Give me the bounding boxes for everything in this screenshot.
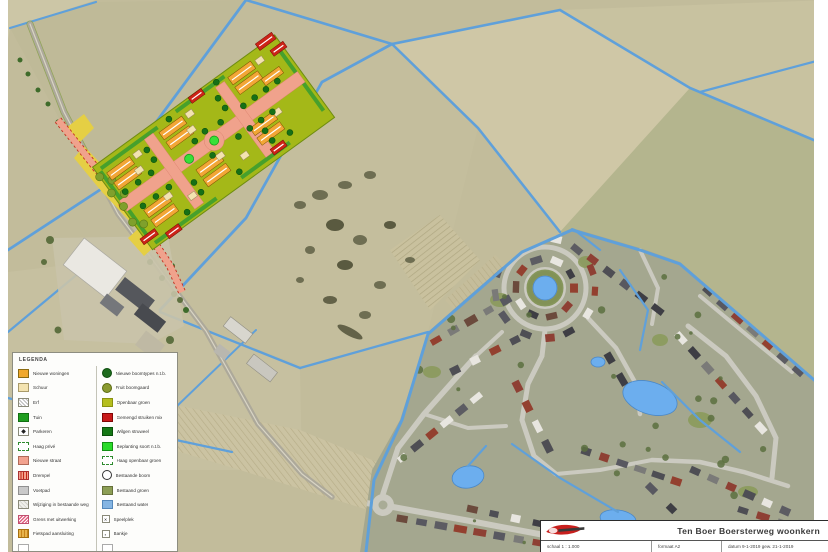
legend-label: Schuur bbox=[33, 385, 48, 390]
legend-row: Fietspad aansluiting bbox=[18, 527, 96, 542]
legend-row: Bestaand groen bbox=[102, 483, 174, 498]
legend-swatch-new-trees-icon bbox=[102, 368, 112, 378]
legend-row bbox=[18, 541, 96, 552]
legend-row: Parkeren bbox=[18, 424, 96, 439]
legend-swatch-bike-path-icon bbox=[18, 529, 29, 538]
legend-label: Bestaande boom bbox=[116, 473, 151, 478]
legend-label: Bestaand water bbox=[117, 502, 149, 507]
date-label: datum 9-1-2019 gew. 21-1-2019 bbox=[721, 541, 828, 552]
legend-row: Fruit boomgaard bbox=[102, 381, 174, 396]
legend-label: Haag privé bbox=[33, 444, 55, 449]
legend-row: Bestaand water bbox=[102, 497, 174, 512]
legend-swatch-empty-icon bbox=[102, 544, 113, 552]
legend-swatch-existing-water-icon bbox=[102, 500, 113, 509]
legend-column-right: Nieuwe boomtypes n.t.b.Fruit boomgaardOp… bbox=[96, 366, 174, 552]
legend-swatch-hedge-public-icon bbox=[102, 456, 113, 465]
legend-swatch-playground-icon bbox=[102, 515, 110, 523]
legend-label: Grens met uitwerking bbox=[33, 517, 76, 522]
legend-title: LEGENDA bbox=[19, 357, 173, 363]
legend-swatch-orchard-icon bbox=[102, 383, 112, 393]
legend-swatch-new-street-icon bbox=[18, 456, 29, 465]
legend-label: Openbaar groen bbox=[117, 400, 150, 405]
legend-label: Fruit boomgaard bbox=[116, 385, 150, 390]
legend-row: Haag openbaar groen bbox=[102, 454, 174, 469]
scanned-plan-sheet: LEGENDA Nieuwe woningenSchuurErfTuinPark… bbox=[0, 0, 828, 552]
legend-swatch-willow-scrub-icon bbox=[102, 427, 113, 436]
legend-label: Nieuwe straat bbox=[33, 458, 61, 463]
legend-label: Voetpad bbox=[33, 488, 50, 493]
legend-row: Wijziging in bestaande weg bbox=[18, 497, 96, 512]
legend-label: Nieuwe boomtypes n.t.b. bbox=[116, 371, 167, 376]
legend-swatch-hedge-private-icon bbox=[18, 442, 29, 451]
legend-label: Bankje bbox=[114, 531, 128, 536]
legend-row: Erf bbox=[18, 395, 96, 410]
legend-row: Haag privé bbox=[18, 439, 96, 454]
title-block: Ten Boer Boersterweg woonkern schaal 1 :… bbox=[540, 520, 828, 552]
legend-label: Gemengd struiken mix bbox=[117, 415, 163, 420]
right-margin bbox=[814, 0, 828, 552]
legend-swatch-existing-green-icon bbox=[102, 486, 113, 495]
format-label: formaat A2 bbox=[651, 541, 721, 552]
legend-column-left: Nieuwe woningenSchuurErfTuinParkerenHaag… bbox=[18, 366, 96, 552]
legend-label: Nieuwe woningen bbox=[33, 371, 69, 376]
legend-swatch-boundary-icon bbox=[18, 515, 29, 524]
legend-swatch-parking-icon bbox=[18, 427, 29, 436]
legend-row: Drempel bbox=[18, 468, 96, 483]
legend-row: Nieuwe straat bbox=[18, 454, 96, 469]
legend-row: Voetpad bbox=[18, 483, 96, 498]
legend-swatch-yard-icon bbox=[18, 398, 29, 407]
legend-row: Wilgen struweel bbox=[102, 424, 174, 439]
legend-swatch-public-green-icon bbox=[102, 398, 113, 407]
legend-label: Beplanting soort n.t.b. bbox=[117, 444, 162, 449]
legend-label: Wilgen struweel bbox=[117, 429, 149, 434]
legend-swatch-speed-bump-icon bbox=[18, 471, 29, 480]
legend-label: Haag openbaar groen bbox=[117, 458, 162, 463]
legend-label: Drempel bbox=[33, 473, 50, 478]
legend-label: Parkeren bbox=[33, 429, 52, 434]
legend-row: Bankje bbox=[102, 527, 174, 542]
legend-row bbox=[102, 541, 174, 552]
legend-swatch-new-dwellings-icon bbox=[18, 369, 29, 378]
roundabout bbox=[372, 494, 394, 516]
legend-row: Openbaar groen bbox=[102, 395, 174, 410]
legend-swatch-shrub-mix-icon bbox=[102, 413, 113, 422]
legend-swatch-existing-tree-icon bbox=[102, 470, 112, 480]
legend-swatch-empty-icon bbox=[18, 544, 29, 552]
legend-swatch-garden-icon bbox=[18, 413, 29, 422]
legend-label: Wijziging in bestaande weg bbox=[33, 502, 89, 507]
company-logo bbox=[541, 521, 637, 540]
legend-label: Fietspad aansluiting bbox=[33, 531, 74, 536]
legend-row: Schuur bbox=[18, 381, 96, 396]
map-legend: LEGENDA Nieuwe woningenSchuurErfTuinPark… bbox=[12, 352, 178, 552]
legend-swatch-planting-tbd-icon bbox=[102, 442, 113, 451]
legend-swatch-shed-icon bbox=[18, 383, 29, 392]
legend-row: Nieuwe woningen bbox=[18, 366, 96, 381]
legend-label: Erf bbox=[33, 400, 39, 405]
legend-label: Bestaand groen bbox=[117, 488, 149, 493]
legend-label: Tuin bbox=[33, 415, 42, 420]
legend-row: Nieuwe boomtypes n.t.b. bbox=[102, 366, 174, 381]
legend-row: Bestaande boom bbox=[102, 468, 174, 483]
project-title: Ten Boer Boersterweg woonkern bbox=[637, 526, 828, 536]
left-margin bbox=[0, 0, 8, 552]
legend-swatch-footpath-icon bbox=[18, 486, 29, 495]
legend-row: Grens met uitwerking bbox=[18, 512, 96, 527]
scale-label: schaal 1 : 1.000 bbox=[541, 541, 651, 552]
legend-row: Speelplek bbox=[102, 512, 174, 527]
legend-swatch-bench-icon bbox=[102, 530, 110, 538]
legend-row: Beplanting soort n.t.b. bbox=[102, 439, 174, 454]
legend-row: Tuin bbox=[18, 410, 96, 425]
legend-row: Gemengd struiken mix bbox=[102, 410, 174, 425]
legend-label: Speelplek bbox=[114, 517, 134, 522]
legend-swatch-road-change-icon bbox=[18, 500, 29, 509]
